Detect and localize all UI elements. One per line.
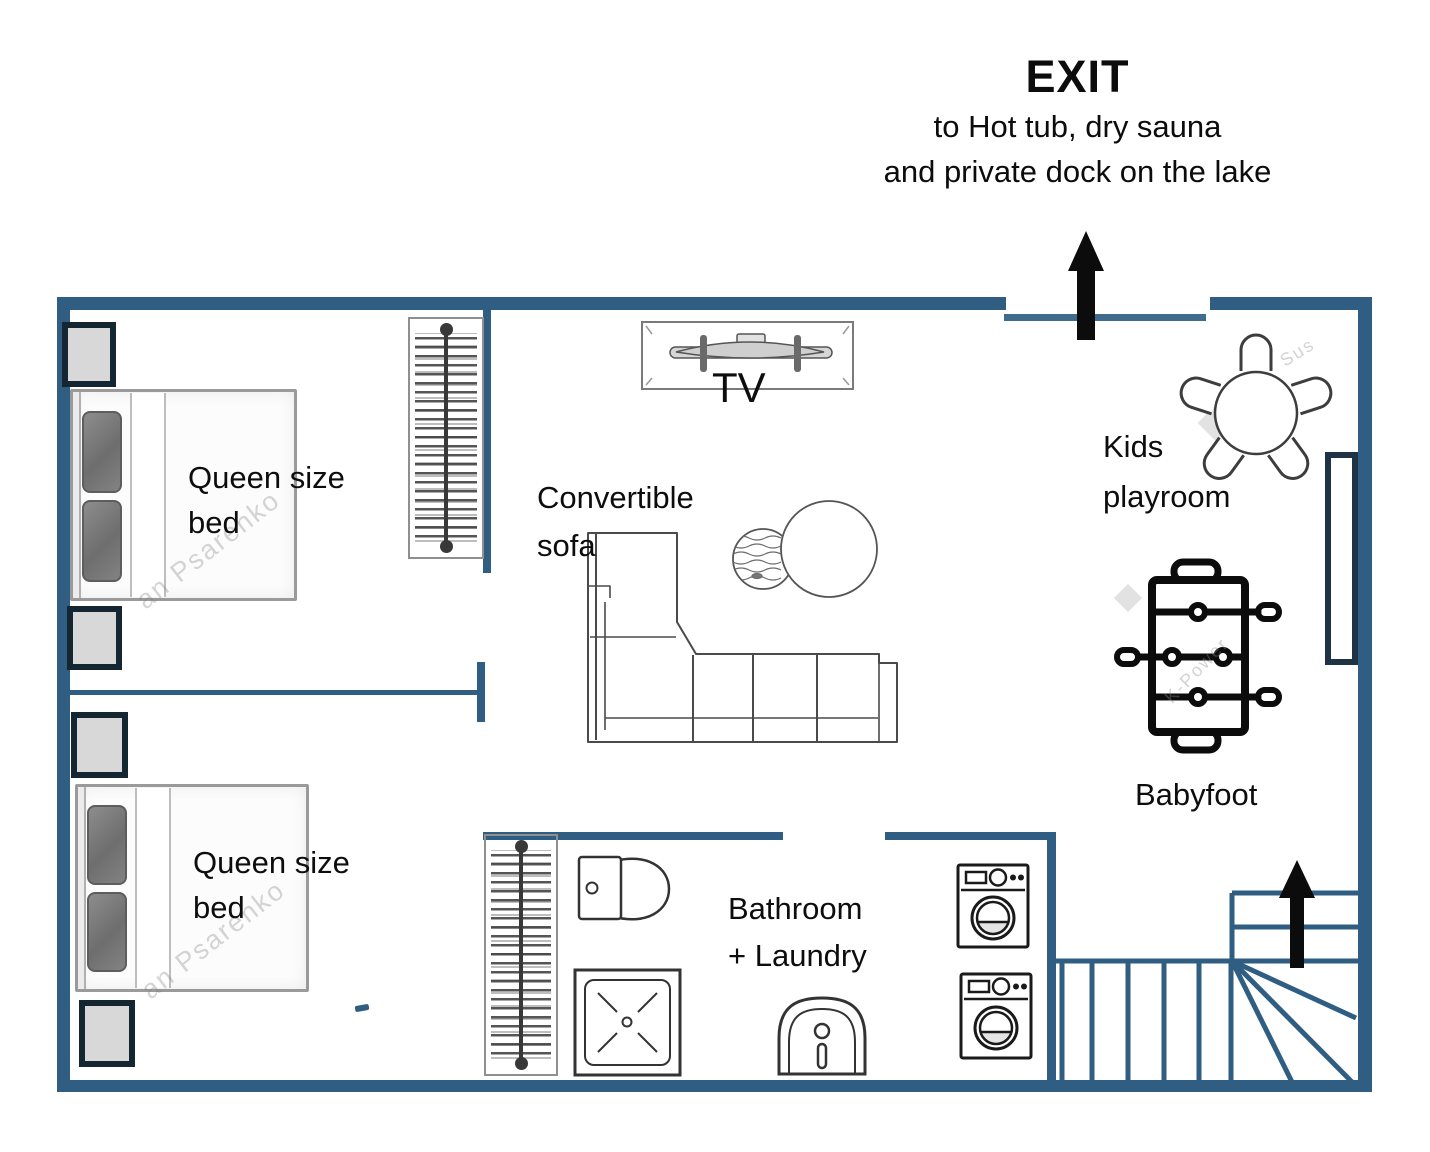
toilet-icon — [579, 857, 669, 919]
floor-plan: EXIT to Hot tub, dry sauna and private d… — [0, 0, 1430, 1152]
babyfoot-label: Babyfoot — [1135, 772, 1257, 818]
sofa-label: Convertible sofa — [537, 474, 694, 570]
exit-sign: EXIT to Hot tub, dry sauna and private d… — [845, 50, 1310, 194]
tv-label: TV — [712, 366, 766, 410]
shower-icon — [575, 970, 680, 1075]
exit-arrow — [1068, 231, 1104, 340]
washer-icon — [958, 865, 1028, 947]
bedroom-bottom-label: Queen size bed — [193, 840, 350, 930]
stairs-up-arrow — [1279, 860, 1315, 968]
kids-playroom-label: Kids playroom — [1103, 422, 1231, 522]
bathroom-label: Bathroom + Laundry — [728, 885, 867, 979]
sink-icon — [779, 998, 865, 1074]
exit-subtitle-line2: and private dock on the lake — [845, 149, 1310, 194]
exit-subtitle-line1: to Hot tub, dry sauna — [845, 104, 1310, 149]
side-table — [781, 501, 877, 597]
staircase — [1048, 893, 1358, 1084]
bedroom-top-label: Queen size bed — [188, 455, 345, 545]
dryer-icon — [961, 974, 1031, 1058]
exit-title: EXIT — [845, 50, 1310, 104]
kids-chair — [1241, 335, 1271, 371]
